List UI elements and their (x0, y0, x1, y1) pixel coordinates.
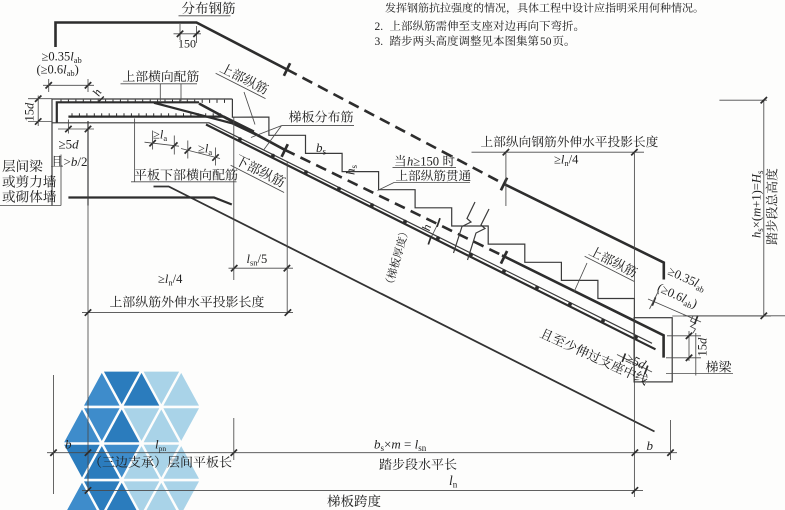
svg-text:150: 150 (178, 37, 196, 51)
svg-text:50: 50 (540, 36, 552, 48)
svg-text:b: b (647, 438, 654, 453)
svg-text:≥5d: ≥5d (59, 137, 80, 152)
svg-text:>b/2: >b/2 (64, 154, 88, 169)
svg-text:15d: 15d (696, 337, 710, 357)
svg-text:hs×(m+1)=Hs: hs×(m+1)=Hs (750, 170, 766, 238)
svg-text:2.: 2. (375, 21, 384, 33)
svg-text:15d: 15d (23, 102, 37, 122)
svg-text:h≥150: h≥150 (407, 154, 439, 168)
svg-text:3.: 3. (375, 36, 384, 48)
svg-text:b: b (65, 437, 72, 452)
svg-text:lsn/5: lsn/5 (247, 252, 268, 268)
